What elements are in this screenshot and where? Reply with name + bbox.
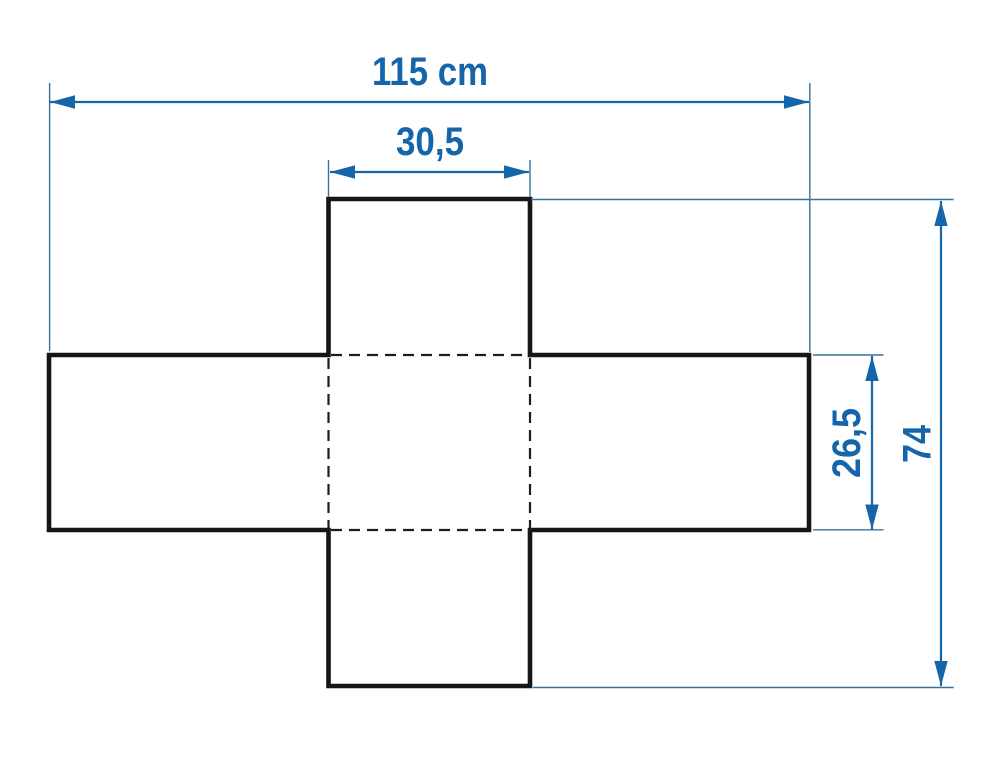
svg-text:26,5: 26,5 [825, 408, 869, 478]
svg-text:115 cm: 115 cm [372, 50, 488, 94]
svg-text:30,5: 30,5 [396, 120, 464, 164]
svg-text:74: 74 [896, 424, 940, 463]
